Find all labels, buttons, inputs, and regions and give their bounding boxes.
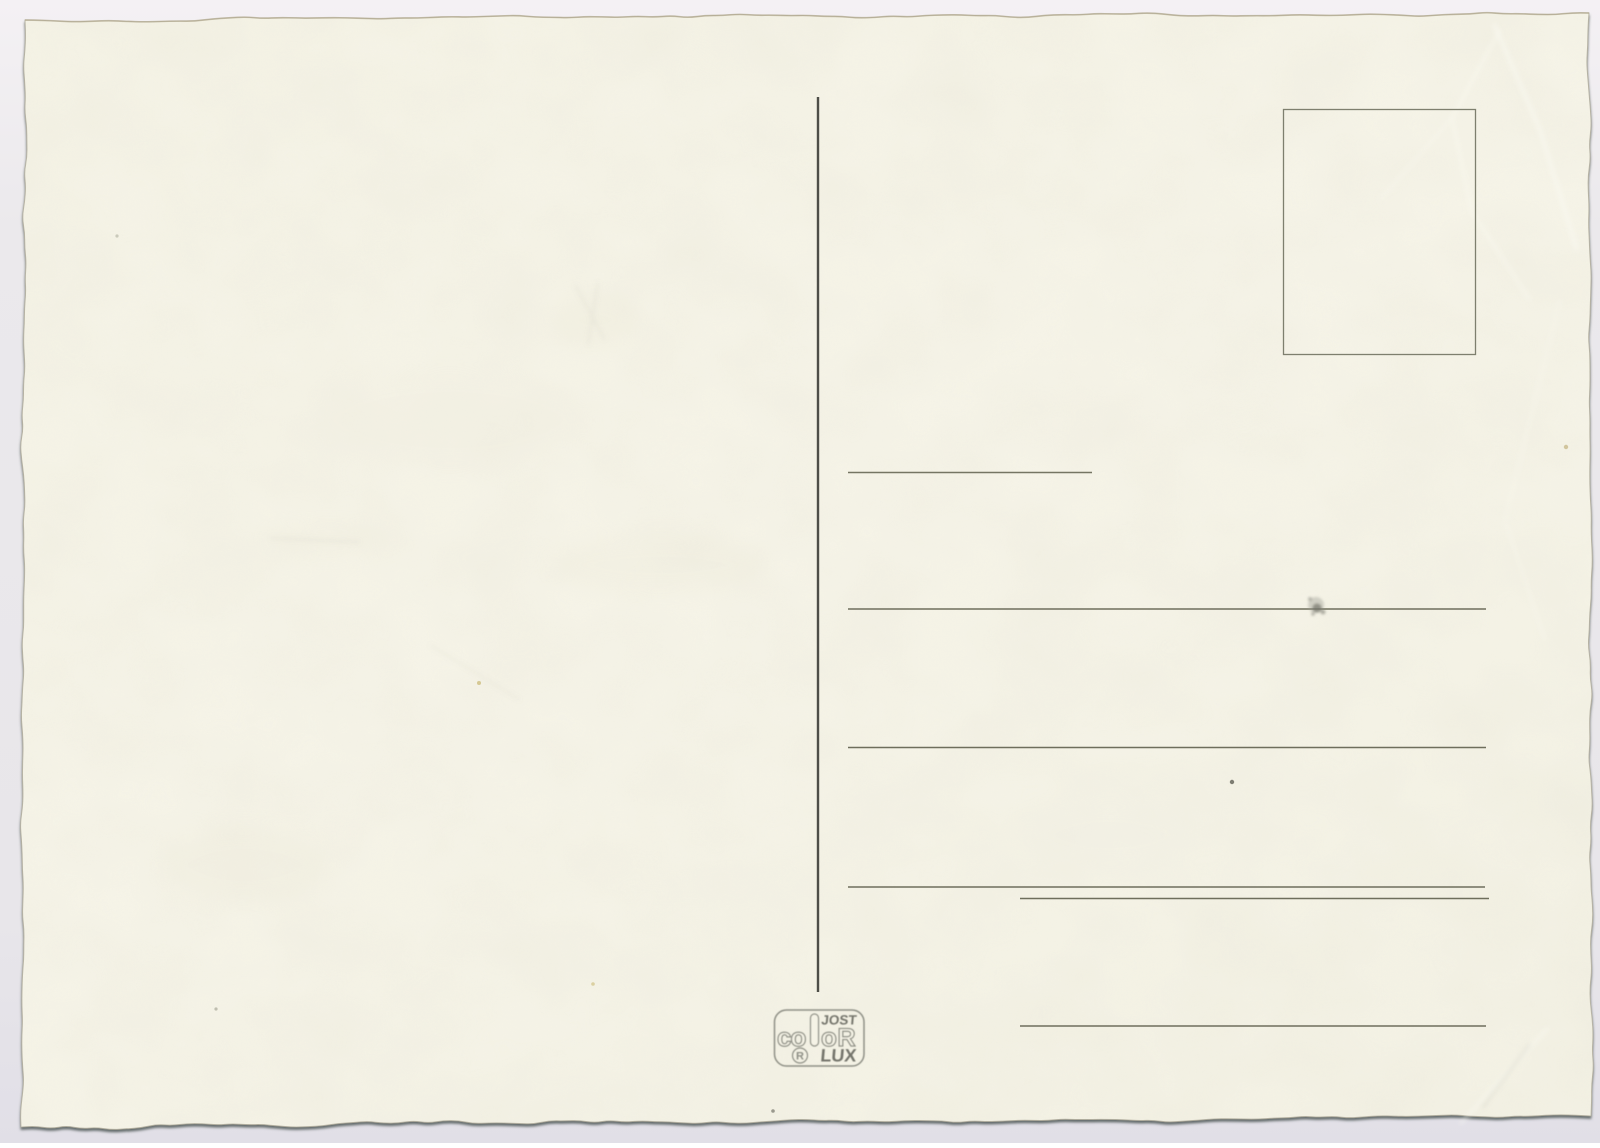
svg-text:R: R: [796, 1051, 804, 1063]
svg-text:LUX: LUX: [820, 1046, 858, 1066]
